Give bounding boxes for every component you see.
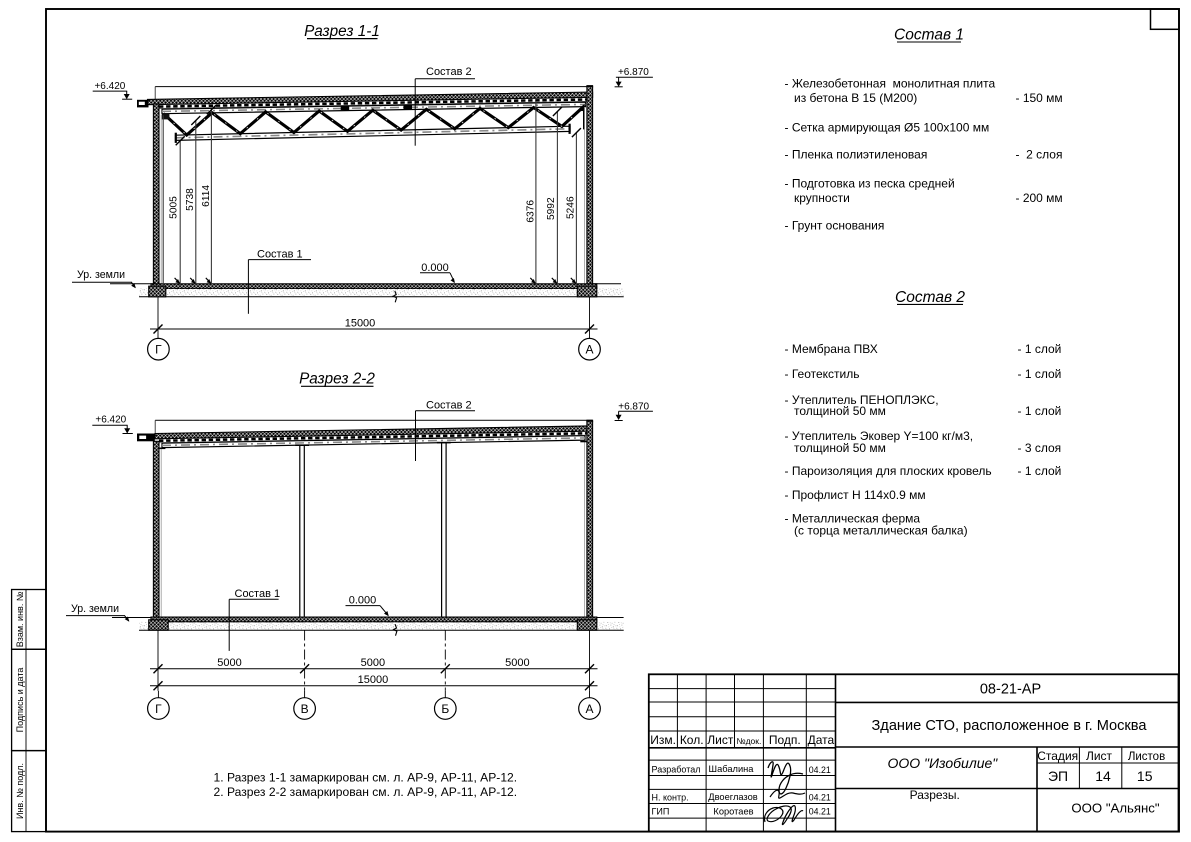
- svg-text:из бетона В 15 (М200): из бетона В 15 (М200): [794, 91, 917, 105]
- svg-text:- 1 слой: - 1 слой: [1018, 342, 1062, 356]
- svg-text:Разрезы.: Разрезы.: [910, 788, 960, 802]
- svg-text:Ур. земли: Ур. земли: [71, 603, 119, 615]
- svg-text:Г: Г: [155, 343, 162, 357]
- svg-text:15: 15: [1137, 768, 1153, 784]
- svg-text:- 1 слой: - 1 слой: [1018, 367, 1062, 381]
- svg-text:Шабалина: Шабалина: [709, 764, 755, 774]
- svg-text:ЭП: ЭП: [1048, 768, 1068, 784]
- svg-text:А: А: [585, 702, 593, 716]
- svg-text:+6.420: +6.420: [95, 414, 126, 425]
- svg-text:5992: 5992: [546, 197, 557, 220]
- svg-text:Состав 1: Состав 1: [894, 27, 964, 44]
- svg-text:Разрез 2-2: Разрез 2-2: [299, 371, 375, 388]
- svg-text:Состав 2: Состав 2: [426, 399, 472, 411]
- svg-text:- 3 слоя: - 3 слоя: [1018, 441, 1062, 455]
- svg-text:толщиной 50 мм: толщиной 50 мм: [794, 404, 886, 418]
- svg-text:(с торца металлическая балка): (с торца металлическая балка): [794, 524, 968, 538]
- svg-text:ГИП: ГИП: [652, 807, 670, 817]
- svg-text:Инв. № подл.: Инв. № подл.: [15, 763, 25, 819]
- svg-text:Двоеглазов: Двоеглазов: [708, 792, 757, 802]
- svg-text:15000: 15000: [358, 674, 389, 686]
- svg-text:6114: 6114: [201, 185, 212, 207]
- svg-text:Разработал: Разработал: [652, 765, 701, 775]
- svg-text:- Железобетонная монолитная п: - Железобетонная монолитная плита: [785, 76, 996, 90]
- svg-text:04.21: 04.21: [809, 793, 831, 803]
- svg-text:0.000: 0.000: [421, 262, 449, 274]
- svg-text:Листов: Листов: [1128, 751, 1165, 763]
- svg-text:В: В: [301, 702, 309, 716]
- svg-text:Разрез 1-1: Разрез 1-1: [304, 23, 380, 40]
- svg-text:- Профлист Н 114х0.9 мм: - Профлист Н 114х0.9 мм: [785, 488, 926, 502]
- svg-text:5000: 5000: [361, 657, 385, 669]
- svg-text:- 1 слой: - 1 слой: [1018, 464, 1062, 478]
- svg-text:Состав 2: Состав 2: [426, 66, 472, 78]
- svg-text:5246: 5246: [566, 196, 577, 219]
- svg-text:Изм.: Изм.: [650, 733, 676, 747]
- svg-text:Состав 1: Состав 1: [235, 588, 281, 600]
- svg-text:14: 14: [1095, 768, 1111, 784]
- svg-text:5000: 5000: [505, 657, 529, 669]
- svg-text:15000: 15000: [345, 317, 376, 329]
- svg-text:Г: Г: [155, 702, 162, 716]
- svg-text:толщиной 50 мм: толщиной 50 мм: [794, 441, 886, 455]
- svg-text:- Мембрана ПВХ: - Мембрана ПВХ: [785, 342, 878, 356]
- svg-text:№док.: №док.: [736, 736, 761, 746]
- svg-text:ООО "Альянс": ООО "Альянс": [1071, 801, 1159, 816]
- svg-text:крупности: крупности: [794, 191, 850, 205]
- svg-text:Кол.: Кол.: [680, 733, 704, 747]
- svg-text:Б: Б: [441, 702, 449, 716]
- svg-text:- 200 мм: - 200 мм: [1016, 191, 1063, 205]
- svg-text:Состав 1: Состав 1: [257, 249, 303, 261]
- svg-text:- Геотекстиль: - Геотекстиль: [785, 367, 860, 381]
- svg-text:ООО "Изобилие": ООО "Изобилие": [888, 755, 999, 771]
- svg-text:5000: 5000: [217, 657, 241, 669]
- svg-text:6376: 6376: [525, 200, 536, 223]
- svg-text:- Пароизоляция для плоских кро: - Пароизоляция для плоских кровель: [785, 464, 992, 478]
- svg-text:А: А: [585, 343, 593, 357]
- svg-text:5738: 5738: [185, 188, 196, 211]
- svg-text:- Грунт основания: - Грунт основания: [785, 219, 885, 233]
- svg-text:+6.870: +6.870: [618, 401, 649, 412]
- svg-text:- 1 слой: - 1 слой: [1018, 404, 1062, 418]
- svg-text:1. Разрез 1-1 замаркирован см.: 1. Разрез 1-1 замаркирован см. л. АР-9, …: [214, 771, 518, 785]
- svg-text:04.21: 04.21: [809, 765, 831, 775]
- svg-text:04.21: 04.21: [809, 807, 831, 817]
- svg-text:5005: 5005: [168, 196, 179, 219]
- svg-text:- 150 мм: - 150 мм: [1016, 91, 1063, 105]
- svg-text:Подп.: Подп.: [769, 733, 801, 747]
- svg-text:Коротаев: Коротаев: [713, 806, 753, 816]
- svg-text:+6.420: +6.420: [94, 81, 125, 92]
- svg-text:- Пленка полиэтиленовая: - Пленка полиэтиленовая: [785, 148, 928, 162]
- svg-text:Лист: Лист: [1086, 749, 1113, 763]
- svg-text:Взам. инв. №: Взам. инв. №: [15, 591, 25, 647]
- svg-text:Н. контр.: Н. контр.: [652, 792, 689, 802]
- svg-text:- Подготовка из песка средней: - Подготовка из песка средней: [785, 177, 955, 191]
- svg-text:+6.870: +6.870: [618, 67, 649, 78]
- svg-text:0.000: 0.000: [349, 594, 377, 606]
- svg-text:- 2 слоя: - 2 слоя: [1016, 148, 1063, 162]
- svg-text:- Сетка армирующая Ø5 100х100: - Сетка армирующая Ø5 100х100 мм: [785, 121, 990, 135]
- svg-text:Здание СТО, расположенное в г.: Здание СТО, расположенное в г. Москва: [871, 718, 1147, 734]
- svg-text:Лист: Лист: [707, 733, 734, 747]
- svg-text:Ур. земли: Ур. земли: [77, 269, 125, 281]
- svg-text:2. Разрез 2-2 замаркирован см.: 2. Разрез 2-2 замаркирован см. л. АР-9, …: [214, 785, 518, 799]
- svg-text:Состав 2: Состав 2: [895, 289, 965, 306]
- svg-text:Дата: Дата: [808, 733, 835, 747]
- svg-text:Подпись и дата: Подпись и дата: [15, 668, 25, 733]
- svg-text:Стадия: Стадия: [1037, 749, 1078, 763]
- svg-text:08-21-АР: 08-21-АР: [980, 682, 1041, 698]
